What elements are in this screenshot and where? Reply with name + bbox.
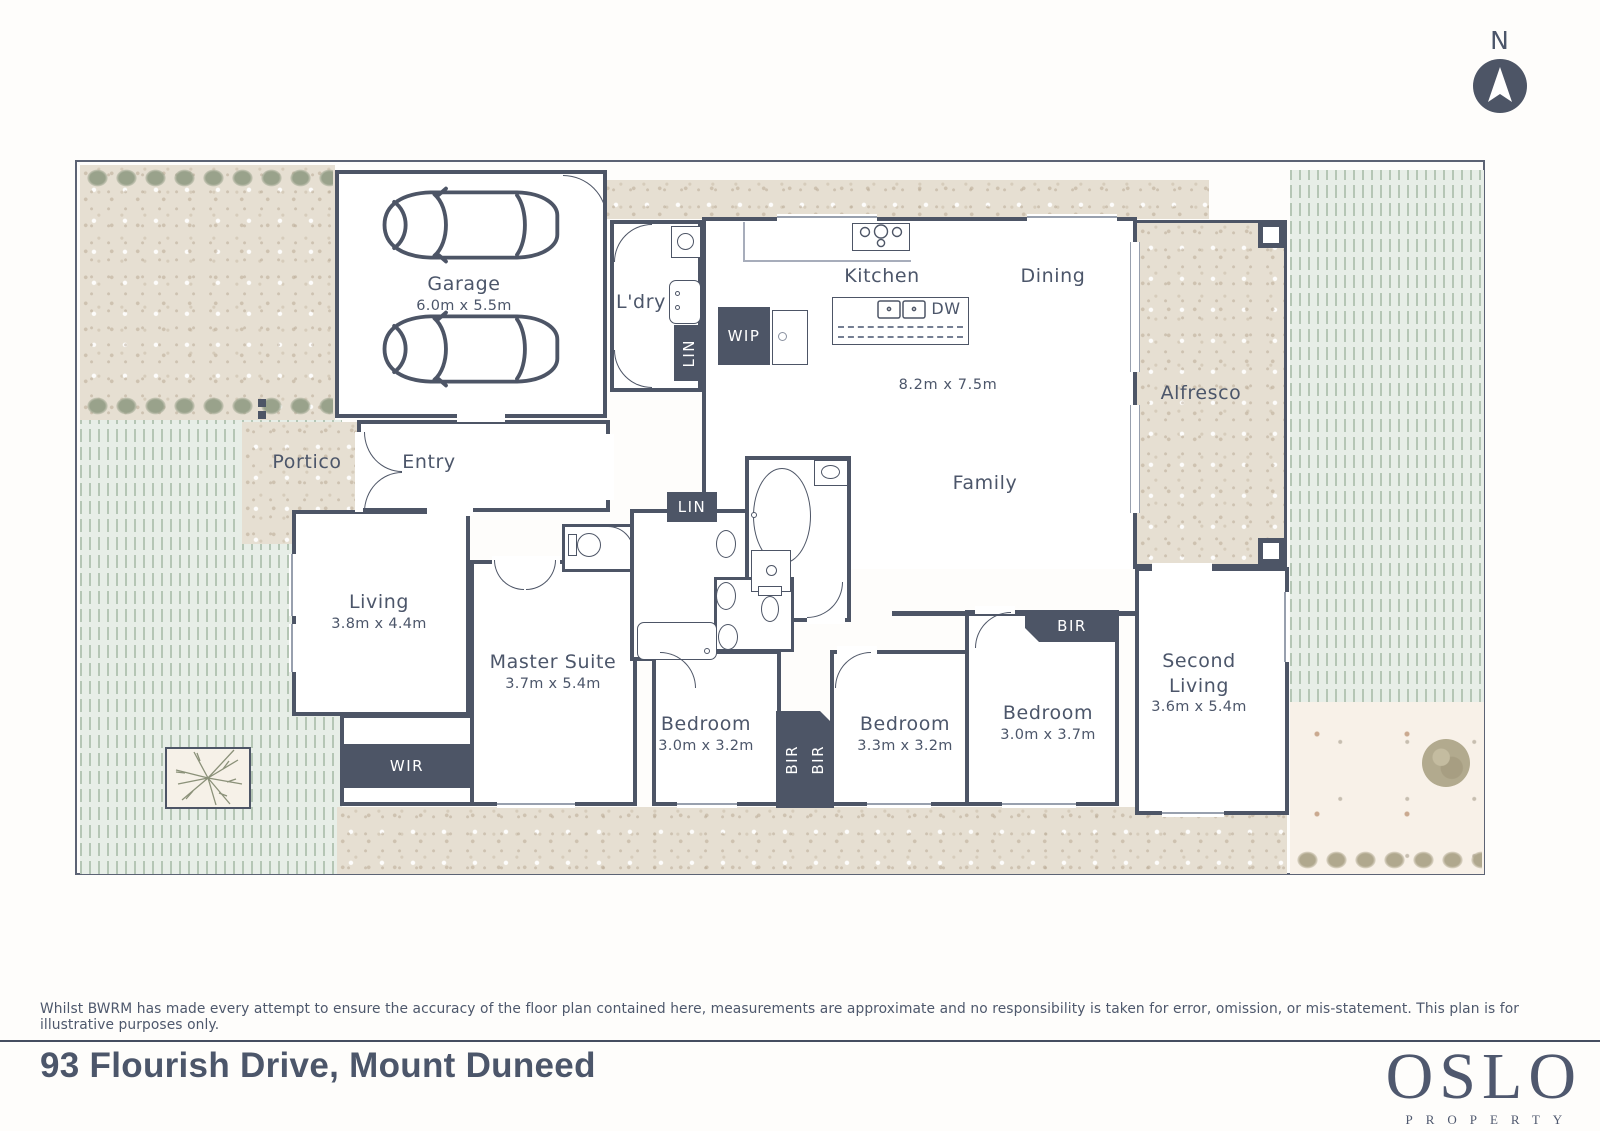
window [1162, 810, 1224, 817]
bir-label: BIR [783, 745, 801, 775]
planter [165, 747, 251, 809]
tap [675, 291, 680, 296]
compass-label: N [1460, 26, 1540, 55]
wip-label: WIP [728, 327, 761, 345]
window [677, 801, 737, 808]
wir-label: WIR [390, 757, 424, 775]
bench-overhang [838, 326, 963, 328]
room-name: L'dry [616, 290, 666, 315]
door-opening [427, 506, 473, 516]
label-bedroom2: Bedroom 3.0m x 3.2m [658, 712, 753, 756]
window [497, 801, 575, 808]
bir-label: BIR [809, 745, 827, 775]
top-path [602, 180, 1209, 219]
label-family: Family [953, 471, 1018, 496]
bath-tap [751, 512, 757, 518]
toilet [577, 533, 601, 557]
basin [716, 582, 736, 610]
car-icon [373, 308, 565, 390]
built-in-robe: BIR BIR [776, 711, 834, 808]
room-name: Bedroom [857, 712, 952, 737]
label-portico: Portico [272, 450, 341, 475]
label-laundry: L'dry [616, 290, 666, 315]
sliding-door [1130, 405, 1140, 513]
room-name: Living [331, 590, 426, 615]
door-opening [606, 434, 614, 500]
label-bedroom4: Bedroom 3.0m x 3.7m [1000, 701, 1095, 745]
sink-basin [677, 233, 694, 250]
dishwasher-label: DW [931, 299, 960, 320]
room-name: Alfresco [1161, 381, 1242, 406]
linen-cupboard: LIN [667, 492, 717, 522]
agency-name: OSLO [1386, 1044, 1582, 1110]
room-name: Second Living [1129, 649, 1269, 698]
property-address: 93 Flourish Drive, Mount Duneed [40, 1046, 596, 1086]
floor-plan: LIN WIP LIN WIR BIR BIR BIR [75, 160, 1485, 875]
label-alfresco: Alfresco [1161, 381, 1242, 406]
driveway [80, 165, 335, 422]
label-dining: Dining [1021, 264, 1086, 289]
tree-icon [167, 749, 249, 807]
sliding-door [1130, 242, 1140, 372]
label-kitchen: Kitchen [844, 264, 920, 289]
north-arrow-icon [1472, 58, 1528, 114]
room-name: Master Suite [483, 650, 623, 675]
toilet-cistern [758, 586, 782, 596]
basin [718, 624, 738, 650]
label-garage: Garage 6.0m x 5.5m [416, 272, 511, 316]
handle [778, 332, 787, 341]
room-dims: 3.8m x 4.4m [331, 615, 426, 634]
toilet [761, 596, 779, 622]
shower-drain [766, 565, 777, 576]
room-dims: 3.3m x 3.2m [857, 737, 952, 756]
walk-in-pantry: WIP [718, 307, 770, 365]
disclaimer-text: Whilst BWRM has made every attempt to en… [40, 1001, 1570, 1033]
room-dims: 3.6m x 5.4m [1129, 698, 1269, 717]
room-name: Portico [272, 450, 341, 475]
room-dims: 3.0m x 3.7m [1000, 726, 1095, 745]
label-master: Master Suite 3.7m x 5.4m [483, 650, 623, 694]
linen-label: LIN [680, 339, 698, 368]
shrub-row-top [83, 166, 333, 190]
door-opening [807, 617, 845, 624]
counter-edge [745, 260, 911, 262]
island-sinks [877, 300, 927, 320]
compass: N [1460, 26, 1540, 118]
label-living: Living 3.8m x 4.4m [331, 590, 426, 634]
room-name: Dining [1021, 264, 1086, 289]
right-lawn [1290, 170, 1484, 702]
bir-label: BIR [1057, 617, 1087, 635]
tree-bush [1422, 739, 1470, 787]
cooktop-burners [853, 224, 908, 249]
fence-post [258, 411, 266, 419]
room-name: Bedroom [658, 712, 753, 737]
laundry-trough [669, 280, 701, 324]
room-name: Bedroom [1000, 701, 1095, 726]
window [1282, 592, 1289, 662]
room-name: Family [953, 471, 1018, 496]
window [867, 801, 931, 808]
page: { "compass": { "label": "N" }, "plan": {… [0, 0, 1600, 1131]
shrub-row-mid [83, 394, 333, 418]
room-dims: 6.0m x 5.5m [416, 297, 511, 316]
label-second-living: Second Living 3.6m x 5.4m [1129, 649, 1269, 717]
vanity [814, 460, 848, 486]
linen-cupboard: LIN [674, 325, 704, 381]
room-name: Entry [402, 450, 456, 475]
basin [716, 530, 736, 558]
walk-in-robe: WIR [340, 744, 474, 788]
room-dims: 3.7m x 5.4m [483, 675, 623, 694]
window [777, 214, 877, 221]
window [289, 554, 296, 616]
counter-edge [743, 222, 745, 262]
room-dims: 3.0m x 3.2m [658, 737, 753, 756]
window [1027, 214, 1117, 221]
label-bedroom3: Bedroom 3.3m x 3.2m [857, 712, 952, 756]
shrub-row-rear [1293, 848, 1482, 872]
laundry-sink [671, 226, 701, 258]
room-name: Kitchen [844, 264, 920, 289]
tub-drain [704, 648, 710, 654]
agency-tagline: PROPERTY [1386, 1112, 1582, 1128]
basin [821, 465, 840, 479]
bathtub [637, 622, 717, 660]
door-opening [837, 646, 877, 654]
car-icon [373, 184, 565, 266]
built-in-robe: BIR [1025, 610, 1119, 642]
door-opening [355, 432, 363, 512]
pantry-shelf [772, 310, 808, 365]
door-opening [457, 414, 505, 422]
alfresco-post [1258, 538, 1284, 564]
window [289, 624, 296, 672]
island-bench: DW [832, 297, 969, 345]
agency-logo: OSLO PROPERTY [1386, 1044, 1582, 1128]
fence-post [258, 399, 266, 407]
tap [675, 305, 680, 310]
door-opening [1152, 563, 1212, 571]
window [1002, 801, 1076, 808]
alfresco-post [1258, 222, 1284, 248]
cooktop [852, 223, 910, 251]
label-open-dims: 8.2m x 7.5m [899, 376, 998, 395]
label-entry: Entry [402, 450, 456, 475]
room-dims: 8.2m x 7.5m [899, 376, 998, 395]
room-name: Garage [416, 272, 511, 297]
footer-divider [0, 1040, 1600, 1042]
rear-path [337, 807, 1287, 874]
toilet-cistern [568, 534, 577, 556]
linen-label: LIN [678, 498, 707, 516]
bench-overhang [838, 336, 963, 338]
